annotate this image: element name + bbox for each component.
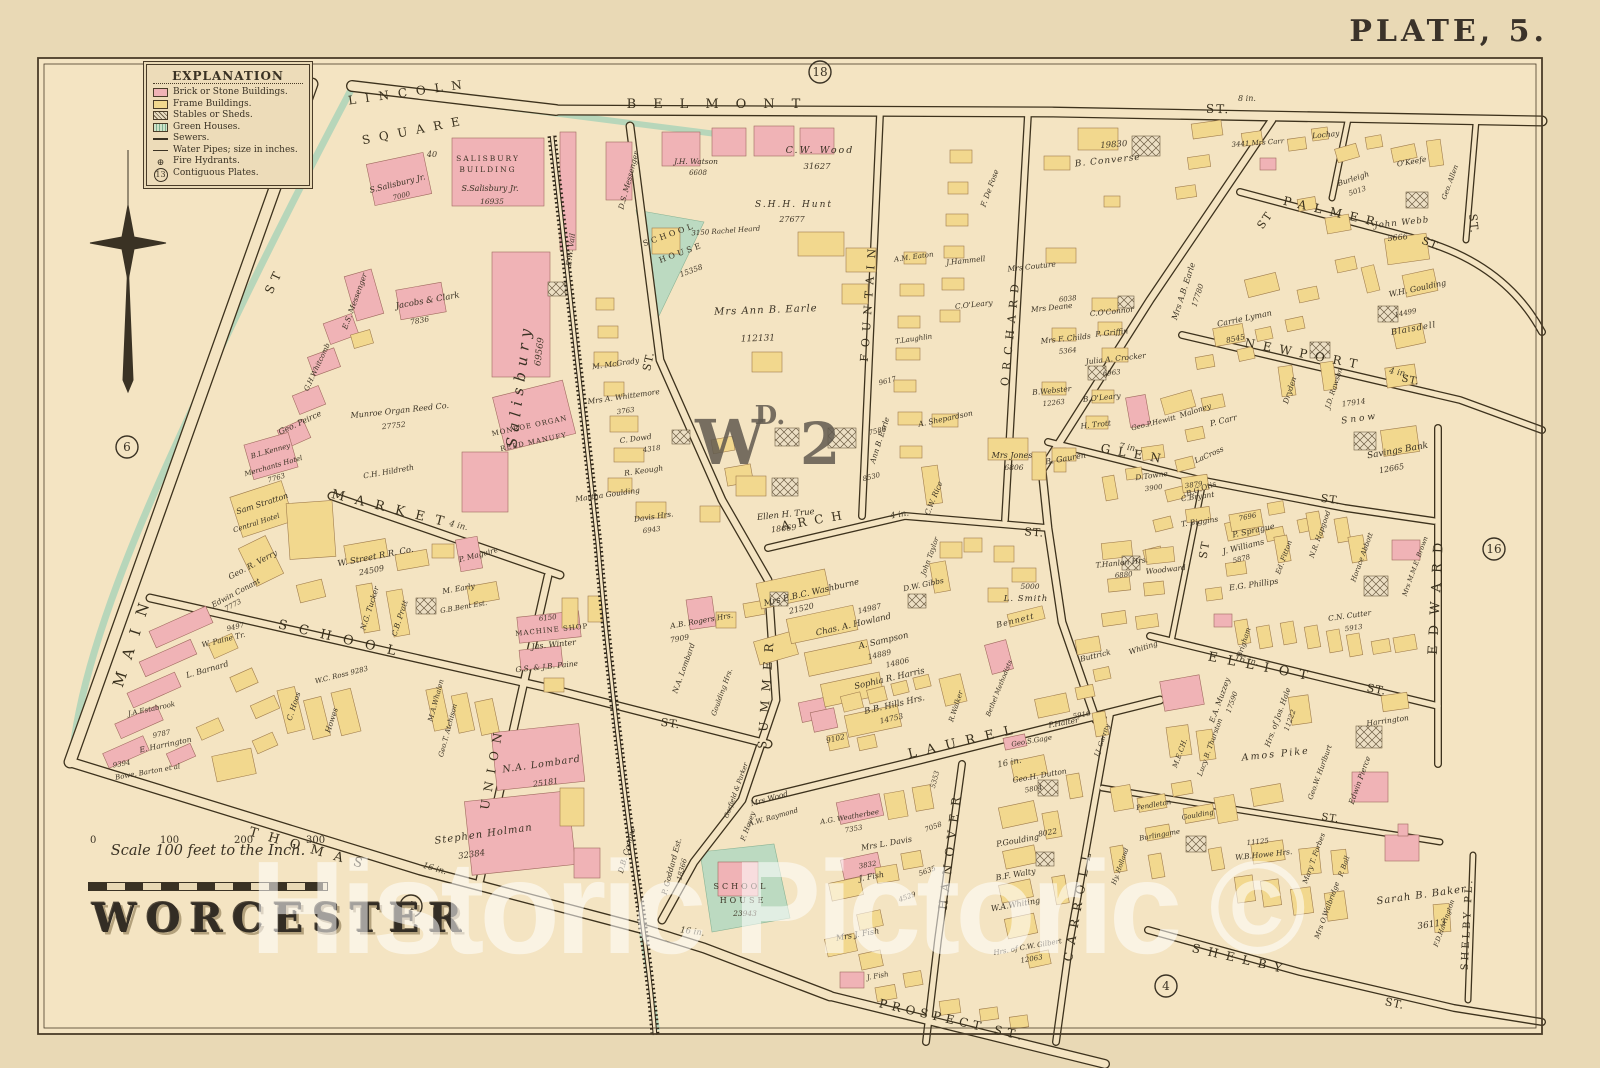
legend-box: EXPLANATION Brick or Stone Buildings. Fr… [146,64,310,186]
map-label: 112131 [741,333,776,344]
map-label: 16935 [480,197,504,206]
legend-item-label: Contiguous Plates. [173,168,259,180]
map-label: BUILDING [459,165,516,174]
map-label: 31627 [803,162,831,172]
map-label: S.Salisbury Jr. [461,184,518,193]
brick-swatch-icon [153,88,168,97]
map-label: ST. [1466,213,1481,234]
atlas-plate-page: 1861644 LINCOLNSQUAREBELMONTST.ST.MAINST… [0,0,1600,1068]
legend-item: Green Houses. [153,122,303,134]
legend-item: Sewers. [153,133,303,145]
fire-hydrant-icon: ⊕ [153,158,168,165]
map-label: 27677 [778,215,805,224]
map-label: 40 [426,150,437,159]
greenhouse-swatch-icon [153,123,168,132]
legend-item-label: Frame Buildings. [173,99,251,111]
contiguous-plate-icon: 13 [153,168,168,181]
legend-item: Brick or Stone Buildings. [153,87,303,99]
map-label: ST. [1206,102,1231,116]
svg-text:18: 18 [812,65,827,79]
map-label: 6608 [689,169,707,177]
legend-item: Water Pipes; size in inches. [153,145,303,157]
legend-item: Frame Buildings. [153,99,303,111]
sewer-line-icon [153,138,168,140]
map-label: ST. [660,716,681,732]
legend-title: EXPLANATION [153,69,303,84]
map-label: SALISBURY [456,154,520,163]
legend-item-label: Stables or Sheds. [173,110,253,122]
map-label: 19830 [1100,139,1128,151]
water-pipe-line-icon [153,150,168,151]
legend-item: 13 Contiguous Plates. [153,168,303,181]
map-label: Mrs Jones [991,451,1033,460]
map-label: 2 [800,410,840,478]
map-label: L. Smith [1003,594,1049,604]
legend-item-label: Green Houses. [173,122,240,134]
stable-swatch-icon [153,111,168,120]
legend-item-label: Brick or Stone Buildings. [173,87,288,99]
legend-item-label: Fire Hydrants. [173,156,240,168]
map-label: C.W. Wood [786,145,855,156]
map-label: 6806 [1004,463,1023,472]
map-label: 8 in. [1238,94,1256,103]
svg-text:16: 16 [1486,542,1501,556]
legend-item: Stables or Sheds. [153,110,303,122]
map-label: J.H. Watson [672,157,718,166]
svg-text:6: 6 [123,440,131,454]
map-label: D. [755,401,786,431]
map-label: ST. [1320,492,1341,508]
watermark: Historic Pictoric © [250,832,1301,983]
legend-item-label: Water Pipes; size in inches. [173,145,298,157]
map-label: 5000 [1020,582,1039,591]
map-label: ST. [1024,525,1045,539]
frame-swatch-icon [153,100,168,109]
legend-item: ⊕ Fire Hydrants. [153,156,303,168]
map-label: BELMONT [627,97,818,112]
legend-item-label: Sewers. [173,133,209,145]
map-label: S.H.H. Hunt [755,200,833,210]
plate-title: PLATE, 5. [1349,14,1548,49]
